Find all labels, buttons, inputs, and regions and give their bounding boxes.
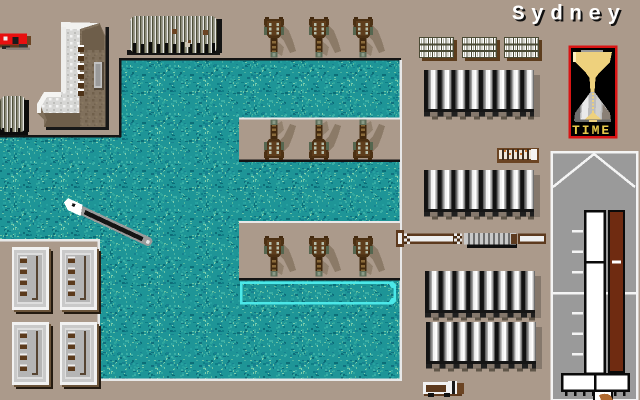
svg-text:TIME: TIME bbox=[572, 123, 611, 138]
svg-text:Sydney: Sydney bbox=[512, 4, 627, 27]
